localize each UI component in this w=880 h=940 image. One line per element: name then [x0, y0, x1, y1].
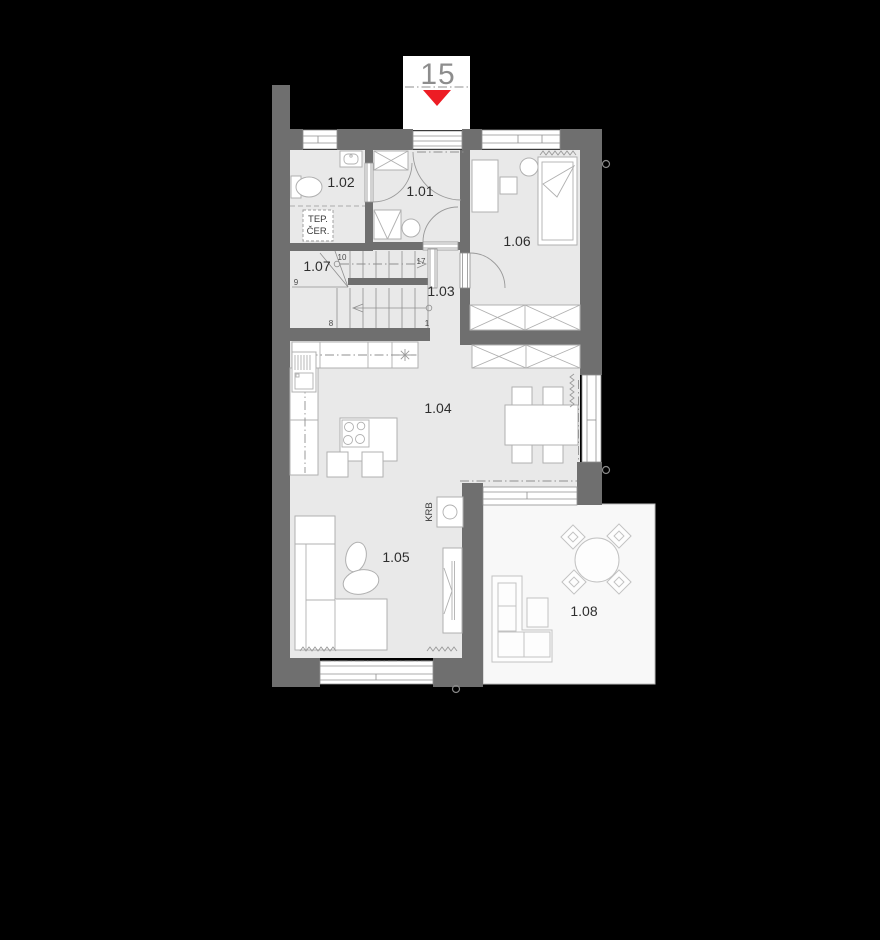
dining-chair: [543, 387, 563, 406]
floor-plan: 15: [0, 0, 880, 940]
window-bathroom: [303, 130, 337, 149]
window-bedroom: [482, 130, 560, 149]
room-label-1-06: 1.06: [503, 233, 530, 249]
washbasin: [340, 151, 362, 167]
dining-table: [505, 405, 578, 445]
desk-chair: [500, 177, 517, 194]
room-label-1-03: 1.03: [427, 283, 454, 299]
stair-step-17: 17: [417, 257, 426, 266]
stair-step-8: 8: [329, 319, 334, 328]
entrance-door-sill: [413, 131, 464, 152]
hall-wardrobe: [472, 345, 580, 368]
stair-step-9: 9: [294, 278, 299, 287]
bedroom-wardrobe: [470, 305, 580, 330]
dining-chair: [543, 444, 563, 463]
unit-entry-marker: 15: [403, 56, 470, 130]
bar-stool: [327, 452, 348, 477]
room-label-1-04: 1.04: [424, 400, 451, 416]
heat-pump-label-1: TEP.: [308, 214, 328, 225]
room-label-1-08: 1.08: [570, 603, 597, 619]
tv-bench: [443, 548, 462, 633]
kitchen-sink: [292, 352, 316, 392]
entry-closet-triangle: [374, 210, 401, 239]
dining-chair: [512, 444, 532, 463]
heat-pump-box: TEP. ČER.: [303, 210, 333, 241]
fridge-icon: [399, 349, 411, 361]
bar-stool: [362, 452, 383, 477]
toilet: [291, 176, 322, 198]
stair-step-10: 10: [338, 253, 347, 262]
bed: [538, 157, 577, 245]
entry-wardrobe: [374, 151, 408, 170]
stair-flight-cut: [348, 278, 428, 285]
room-label-1-07: 1.07: [303, 258, 330, 274]
window-dining-east: [582, 375, 601, 462]
window-dining-south: [483, 487, 577, 505]
stair-step-1: 1: [425, 319, 430, 328]
terrace-table: [575, 538, 619, 582]
heat-pump-label-2: ČER.: [307, 226, 330, 237]
bedroom-stool: [520, 158, 538, 176]
dining-chair: [512, 387, 532, 406]
window-living-south: [320, 661, 433, 684]
unit-number-label: 15: [420, 58, 455, 91]
floor-plan-canvas: 15: [0, 0, 880, 940]
desk: [472, 160, 498, 212]
room-label-1-05: 1.05: [382, 549, 409, 565]
entry-stool: [402, 219, 420, 237]
room-label-1-02: 1.02: [327, 174, 354, 190]
terrace-side-table: [527, 598, 548, 627]
room-label-1-01: 1.01: [406, 183, 433, 199]
fireplace-label: KRB: [424, 502, 435, 522]
